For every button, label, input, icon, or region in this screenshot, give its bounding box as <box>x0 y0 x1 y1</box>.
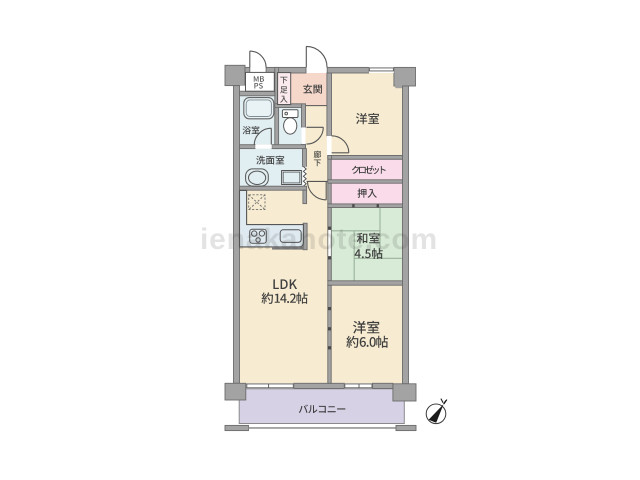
svg-text:ienakanote.com: ienakanote.com <box>200 223 438 256</box>
